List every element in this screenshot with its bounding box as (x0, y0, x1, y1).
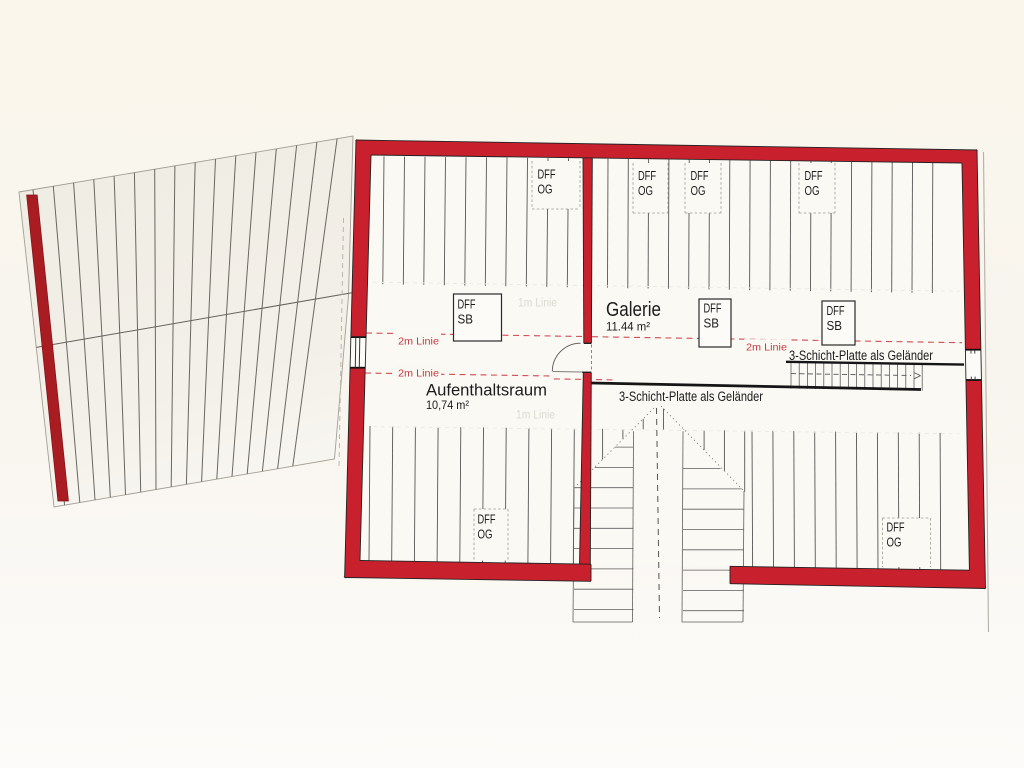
svg-text:Galerie: Galerie (606, 298, 661, 321)
svg-text:DFF: DFF (638, 168, 656, 183)
svg-text:DFF: DFF (478, 512, 496, 527)
svg-text:DFF: DFF (538, 166, 556, 181)
svg-text:SB: SB (704, 316, 720, 331)
svg-text:OG: OG (478, 527, 493, 542)
svg-text:DFF: DFF (691, 168, 709, 183)
svg-text:OG: OG (538, 182, 553, 197)
svg-text:SB: SB (827, 318, 843, 333)
svg-text:11.44 m²: 11.44 m² (606, 320, 650, 334)
svg-text:OG: OG (691, 183, 706, 198)
svg-text:DFF: DFF (827, 303, 845, 318)
svg-text:10,74 m²: 10,74 m² (426, 398, 469, 412)
svg-text:3-Schicht-Platte als Geländer: 3-Schicht-Platte als Geländer (619, 389, 763, 404)
svg-text:2m Linie: 2m Linie (746, 342, 787, 354)
svg-text:1m Linie: 1m Linie (516, 410, 555, 422)
svg-text:2m Linie: 2m Linie (398, 335, 439, 347)
svg-text:1m Linie: 1m Linie (518, 298, 557, 310)
svg-text:3-Schicht-Platte als Geländer: 3-Schicht-Platte als Geländer (789, 348, 933, 363)
svg-text:OG: OG (887, 535, 902, 550)
svg-text:DFF: DFF (458, 297, 476, 312)
svg-text:DFF: DFF (887, 520, 905, 535)
svg-text:DFF: DFF (704, 301, 722, 316)
svg-text:DFF: DFF (805, 168, 823, 183)
svg-text:SB: SB (458, 312, 474, 327)
svg-text:OG: OG (638, 183, 653, 198)
svg-text:Aufenthaltsraum: Aufenthaltsraum (426, 381, 547, 400)
svg-text:OG: OG (805, 183, 820, 198)
svg-text:2m Linie: 2m Linie (398, 368, 439, 380)
